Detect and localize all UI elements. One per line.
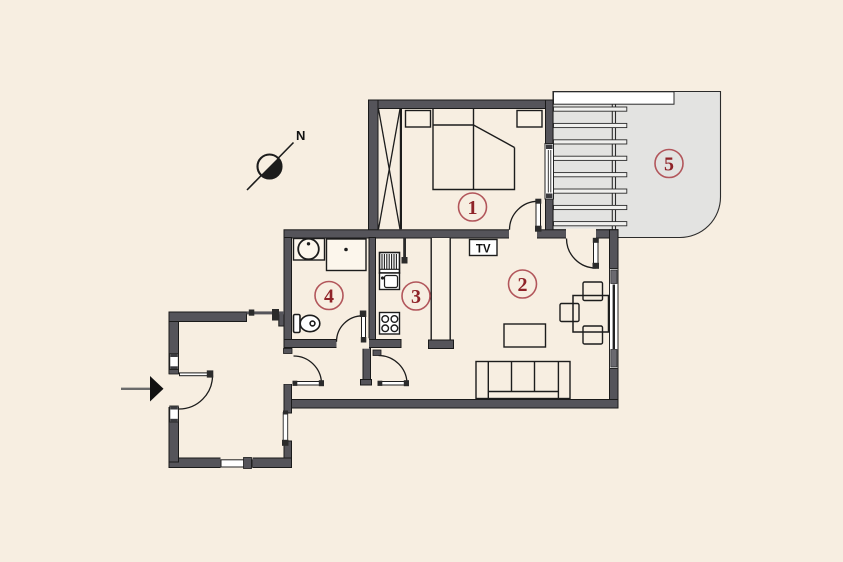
svg-text:3: 3 <box>411 286 421 308</box>
svg-text:2: 2 <box>518 274 528 296</box>
svg-text:4: 4 <box>324 286 334 308</box>
svg-text:N: N <box>296 128 305 143</box>
svg-text:TV: TV <box>476 244 491 256</box>
svg-text:1: 1 <box>468 197 478 219</box>
svg-text:5: 5 <box>664 154 674 176</box>
